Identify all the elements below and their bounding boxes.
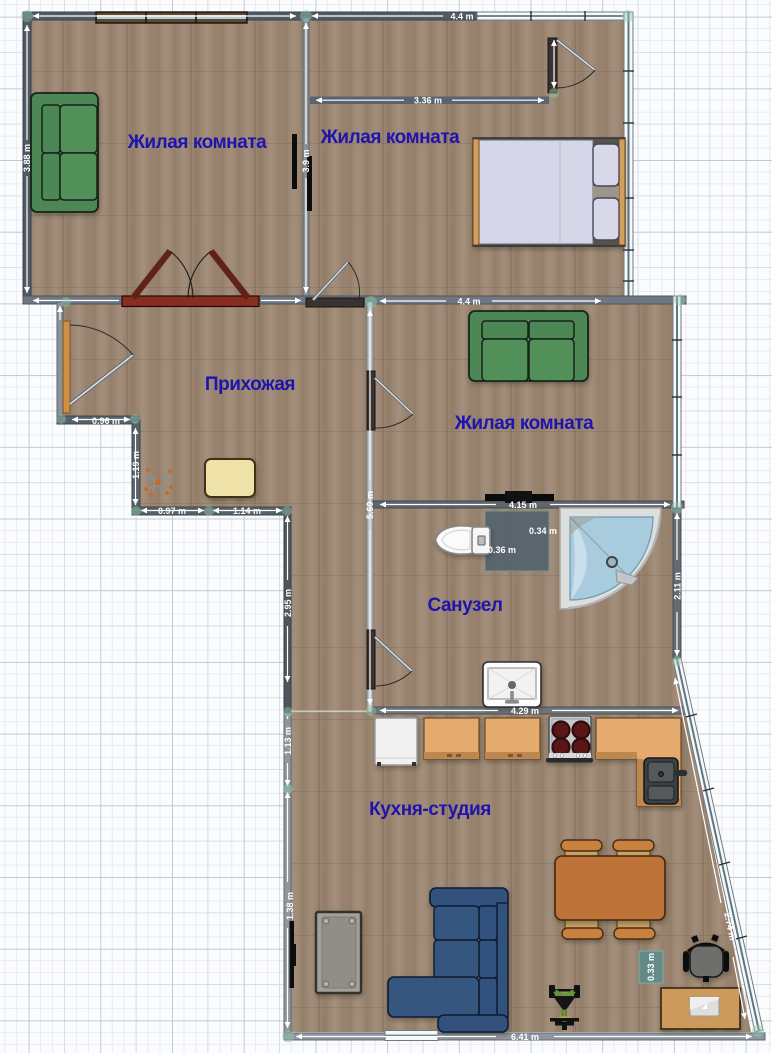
svg-text:1.19 m: 1.19 m [131, 451, 141, 479]
svg-text:3.88 m: 3.88 m [22, 144, 32, 172]
svg-text:4.29 m: 4.29 m [511, 706, 539, 716]
svg-text:Жилая комната: Жилая комната [127, 132, 267, 153]
svg-text:1.14 m: 1.14 m [233, 506, 261, 516]
svg-text:0.33 m: 0.33 m [646, 953, 656, 981]
svg-text:0.36 m: 0.36 m [488, 545, 516, 555]
svg-text:2.95 m: 2.95 m [283, 589, 293, 617]
svg-text:Прихожая: Прихожая [205, 374, 295, 395]
svg-text:3.9 m: 3.9 m [301, 149, 311, 172]
svg-text:0.97 m: 0.97 m [158, 506, 186, 516]
svg-text:Санузел: Санузел [428, 595, 503, 616]
svg-text:1.38 m: 1.38 m [285, 892, 295, 920]
svg-text:6.41 m: 6.41 m [511, 1032, 539, 1042]
svg-text:4.4 m: 4.4 m [450, 12, 473, 22]
svg-text:4.4 m: 4.4 m [457, 297, 480, 307]
svg-text:1.13 m: 1.13 m [283, 727, 293, 755]
svg-text:Жилая комната: Жилая комната [320, 127, 460, 148]
svg-text:5.69 m: 5.69 m [365, 491, 375, 519]
svg-text:4.15 m: 4.15 m [509, 500, 537, 510]
svg-text:3.36 m: 3.36 m [414, 96, 442, 106]
svg-text:2.11 m: 2.11 m [673, 572, 683, 600]
svg-text:Жилая комната: Жилая комната [454, 413, 594, 434]
svg-text:0.34 m: 0.34 m [529, 526, 557, 536]
svg-text:0.96 m: 0.96 m [92, 416, 120, 426]
svg-text:Кухня-студия: Кухня-студия [369, 799, 491, 820]
